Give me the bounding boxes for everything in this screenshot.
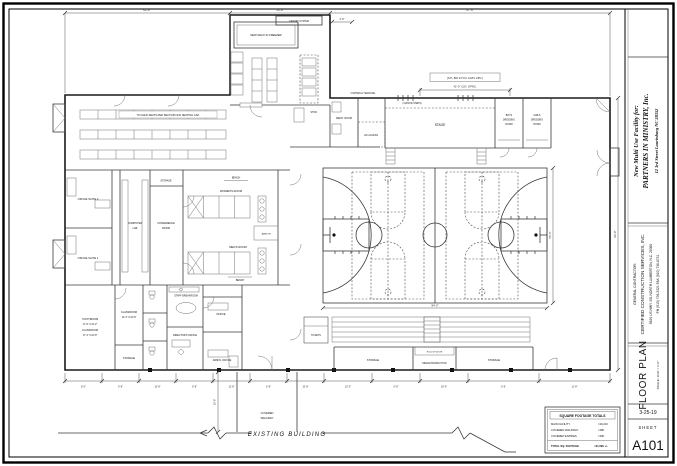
drawing-title: FLOOR PLAN bbox=[638, 340, 649, 409]
building-exterior bbox=[53, 15, 619, 372]
walkway-dim: 10'-8" bbox=[213, 399, 217, 406]
boys-dressing-2: DRESSING bbox=[503, 120, 515, 122]
stage: STAGE (4 WOOD STEPS) bbox=[385, 98, 495, 164]
youthroom-label-2: 17'-6" X 24'-2" bbox=[83, 324, 98, 326]
covered-entry-east bbox=[610, 148, 619, 176]
dim-bottom-11: 6'-8" bbox=[501, 386, 506, 389]
dimensions: 62'-8" 30'-8" 97'-6" 6'-8" [STL BM 24"OC… bbox=[63, 8, 620, 389]
storage-c-label: STORAGE bbox=[367, 359, 380, 362]
basketball-court bbox=[323, 168, 547, 303]
bench-label-bottom: BENCH bbox=[236, 279, 245, 282]
drawing-scale: SCALE: 1/16" = 1'-0" bbox=[656, 361, 660, 390]
dim-bottom-4: 6'-8" bbox=[192, 386, 197, 389]
boys-dressing-1: BOYS bbox=[506, 115, 513, 117]
media-production-label: MEDIA PRODUCTION bbox=[422, 362, 446, 365]
sqft-row-label: MAIN FACILITY bbox=[551, 422, 570, 426]
sqft-row-value: =20,216 bbox=[598, 422, 608, 426]
dim-bottom-8: 22'-0" bbox=[345, 386, 351, 389]
classroom-label-1: CLASSROOM bbox=[121, 311, 137, 314]
title-block: New Multi Use Facility for: PARTNERS IN … bbox=[625, 9, 668, 457]
mens-room-label: MEN'S ROOM bbox=[229, 245, 247, 249]
mech-room-label: MECH. ROOM bbox=[336, 117, 352, 120]
youthroom-label-4: 17'-4" X 22'-8" bbox=[83, 335, 98, 337]
contractor-heading: GENERAL CONTRACTOR: bbox=[633, 263, 637, 305]
computer-lab-label-1: COMPUTER bbox=[128, 222, 143, 225]
dim-bottom-5: 12'-8" bbox=[228, 386, 234, 389]
contractor-phone: PH (910) 739-3321 FAX (910) 738-6731 bbox=[656, 255, 660, 314]
classroom-label-2: 12'-4" X 22'-8" bbox=[122, 317, 137, 319]
wood-steps-note: (4 WOOD STEPS) bbox=[402, 103, 421, 105]
sqft-row-value: =480 bbox=[598, 428, 605, 432]
floor-plan-svg: New Multi Use Facility for: PARTNERS IN … bbox=[0, 0, 677, 466]
sheet-number: A101 bbox=[632, 438, 664, 453]
sqft-row-label: COVERED ENTRIES bbox=[551, 434, 577, 438]
dim-court-w: 84'-0" bbox=[431, 304, 438, 308]
dining-area: 70 CHILD SEATS PER SECTION=210 SEATING C… bbox=[65, 95, 290, 170]
youthroom-label-3: CLASSROOM bbox=[82, 329, 98, 332]
sheet-date: 3-25-19 bbox=[639, 410, 656, 416]
sheet-border bbox=[4, 4, 674, 463]
tickets-booth bbox=[304, 317, 328, 343]
sqft-title: SQUARE FOOTAGE TOTALS bbox=[559, 414, 606, 418]
canopy-label: CANOPY SYSTEM bbox=[289, 20, 309, 23]
existing-building: EXISTING BUILDING bbox=[58, 427, 516, 452]
freezer-label: NEW WALK IN FREEZER bbox=[250, 33, 281, 37]
womens-room-label: WOMEN'S ROOM bbox=[220, 189, 243, 193]
office-suite-1-label: OFFICE SUITE 1 bbox=[78, 256, 99, 260]
tickets-label: TICKETS bbox=[311, 335, 321, 337]
covered-walkway-label-2: WALKWAY bbox=[261, 416, 274, 420]
dim-bottom-12: 11'-8" bbox=[572, 386, 578, 389]
gym: STOR. MECH. ROOM A/C ACCESS CURTAIN & TR… bbox=[290, 92, 610, 370]
stor-label: STOR. bbox=[311, 112, 318, 114]
gym-south-rooms: ROLL UP DOOR STORAGE MEDIA PRODUCTION ST… bbox=[334, 347, 533, 370]
restrooms: BENCH WOMEN'S ROOM JANITOR MEN'S ROOM BE… bbox=[183, 177, 278, 283]
office-suite-2-label: OFFICE SUITE 2 bbox=[78, 197, 99, 201]
dim-bottom-6: 6'-8" bbox=[266, 386, 271, 389]
directors-office-label: DIRECTOR'S OFFICE bbox=[173, 334, 197, 337]
youthroom-label-1: YOUTHROOM bbox=[82, 318, 99, 321]
curtain-note: CURTAIN & TRACKING bbox=[351, 92, 376, 95]
stage-opening-dim: 42'-0" CLR. OPNG. bbox=[453, 85, 476, 89]
girls-dressing-3: ROOM bbox=[533, 124, 540, 126]
project-line2: PARTNERS IN MINISTRY, Inc. bbox=[642, 93, 650, 188]
project-line3: 12 3rd Street Laurinburg NC 28352 bbox=[654, 108, 659, 174]
southwest-wing: YOUTHROOM 17'-6" X 24'-2" CLASSROOM 17'-… bbox=[82, 285, 272, 370]
kitchen-equipment bbox=[231, 52, 316, 102]
kitchen: NEW WALK IN FREEZER CANOPY SYSTEM bbox=[230, 16, 330, 117]
stage-note: [STL BM 24"OC GLB's ABV.] bbox=[447, 76, 483, 80]
dim-bottom-7: 10'-8" bbox=[302, 386, 308, 389]
covered-walkway: COVERED WALKWAY 10'-8" bbox=[213, 370, 298, 434]
square-footage-table: SQUARE FOOTAGE TOTALS MAIN FACILITY =20,… bbox=[545, 407, 620, 453]
storage-b-label: STORAGE bbox=[123, 357, 136, 360]
computer-lab-label-2: LAB bbox=[133, 227, 138, 230]
dim-top2: 30'-8" bbox=[276, 8, 284, 12]
conference-label-1: CONFERENCE bbox=[157, 222, 175, 225]
dim-bottom-10: 18'-0" bbox=[441, 386, 447, 389]
dim-canopy: 6'-8" bbox=[340, 18, 345, 21]
ac-access-label: A/C ACCESS bbox=[364, 134, 378, 137]
drawing-sheet: New Multi Use Facility for: PARTNERS IN … bbox=[0, 0, 677, 466]
sqft-total-value: =21,096 +/- bbox=[594, 444, 608, 448]
sqft-row-value: =400 bbox=[598, 434, 605, 438]
dressing-rooms: BOYS DRESSING ROOM GIRLS DRESSING ROOM bbox=[495, 98, 551, 157]
contractor-address: 9820 US HWY 301 NORTH LUMBERTON, N.C. 28… bbox=[649, 244, 653, 325]
dim-bottom-1: 8'-0" bbox=[81, 386, 86, 389]
storage-d-label: STORAGE bbox=[488, 359, 501, 362]
dim-bottom-9: 6'-8" bbox=[394, 386, 399, 389]
dim-court-h: 50'-0" bbox=[548, 231, 552, 238]
dim-right-v: 96'-8" bbox=[613, 230, 617, 237]
rollup-door-label: ROLL UP DOOR bbox=[427, 352, 443, 354]
covered-entry-west-2 bbox=[53, 240, 65, 268]
dim-top1: 62'-8" bbox=[143, 8, 151, 12]
sheet-word: SHEET bbox=[639, 425, 658, 430]
conference-label-2: ROOM bbox=[162, 227, 170, 230]
storage-small-label: STORAGE bbox=[160, 180, 172, 183]
boys-dressing-3: ROOM bbox=[505, 124, 512, 126]
covered-walkway-label-1: COVERED bbox=[261, 411, 274, 415]
sqft-total-label: TOTAL SQ. FOOTAGE bbox=[551, 444, 579, 448]
existing-building-label: EXISTING BUILDING bbox=[248, 432, 326, 438]
contractor-name: CERTIFIED CONSTRUCTION SERVICES, INC. bbox=[640, 234, 645, 335]
seating-note: 70 CHILD SEATS PER SECTION=210 SEATING C… bbox=[137, 113, 200, 117]
project-line1: New Multi Use Facility for: bbox=[633, 105, 640, 178]
stage-steps bbox=[386, 148, 486, 164]
office-label: OFFICE bbox=[216, 313, 225, 316]
sqft-row-label: COVERED WALKWAY bbox=[551, 428, 579, 432]
janitor-label: JANITOR bbox=[261, 233, 271, 236]
dim-top3: 97'-6" bbox=[466, 8, 474, 12]
dim-bottom-3: 10'-8" bbox=[154, 386, 160, 389]
girls-dressing-1: GIRLS bbox=[534, 115, 541, 117]
toilet-fixtures bbox=[149, 291, 155, 355]
dim-bottom-2: 6'-8" bbox=[118, 386, 123, 389]
covered-entry-west-1 bbox=[53, 104, 65, 132]
girls-dressing-2: DRESSING bbox=[531, 120, 543, 122]
bleachers: TICKETS bbox=[304, 317, 530, 343]
middle-rooms: OFFICE SUITE 2 OFFICE SUITE 1 COMPUTER L… bbox=[65, 170, 290, 285]
stage-label: STAGE bbox=[435, 123, 446, 127]
bench-label-top: BENCH bbox=[232, 177, 241, 180]
staff-breakroom-label: STAFF BREAKROOM bbox=[174, 295, 198, 298]
